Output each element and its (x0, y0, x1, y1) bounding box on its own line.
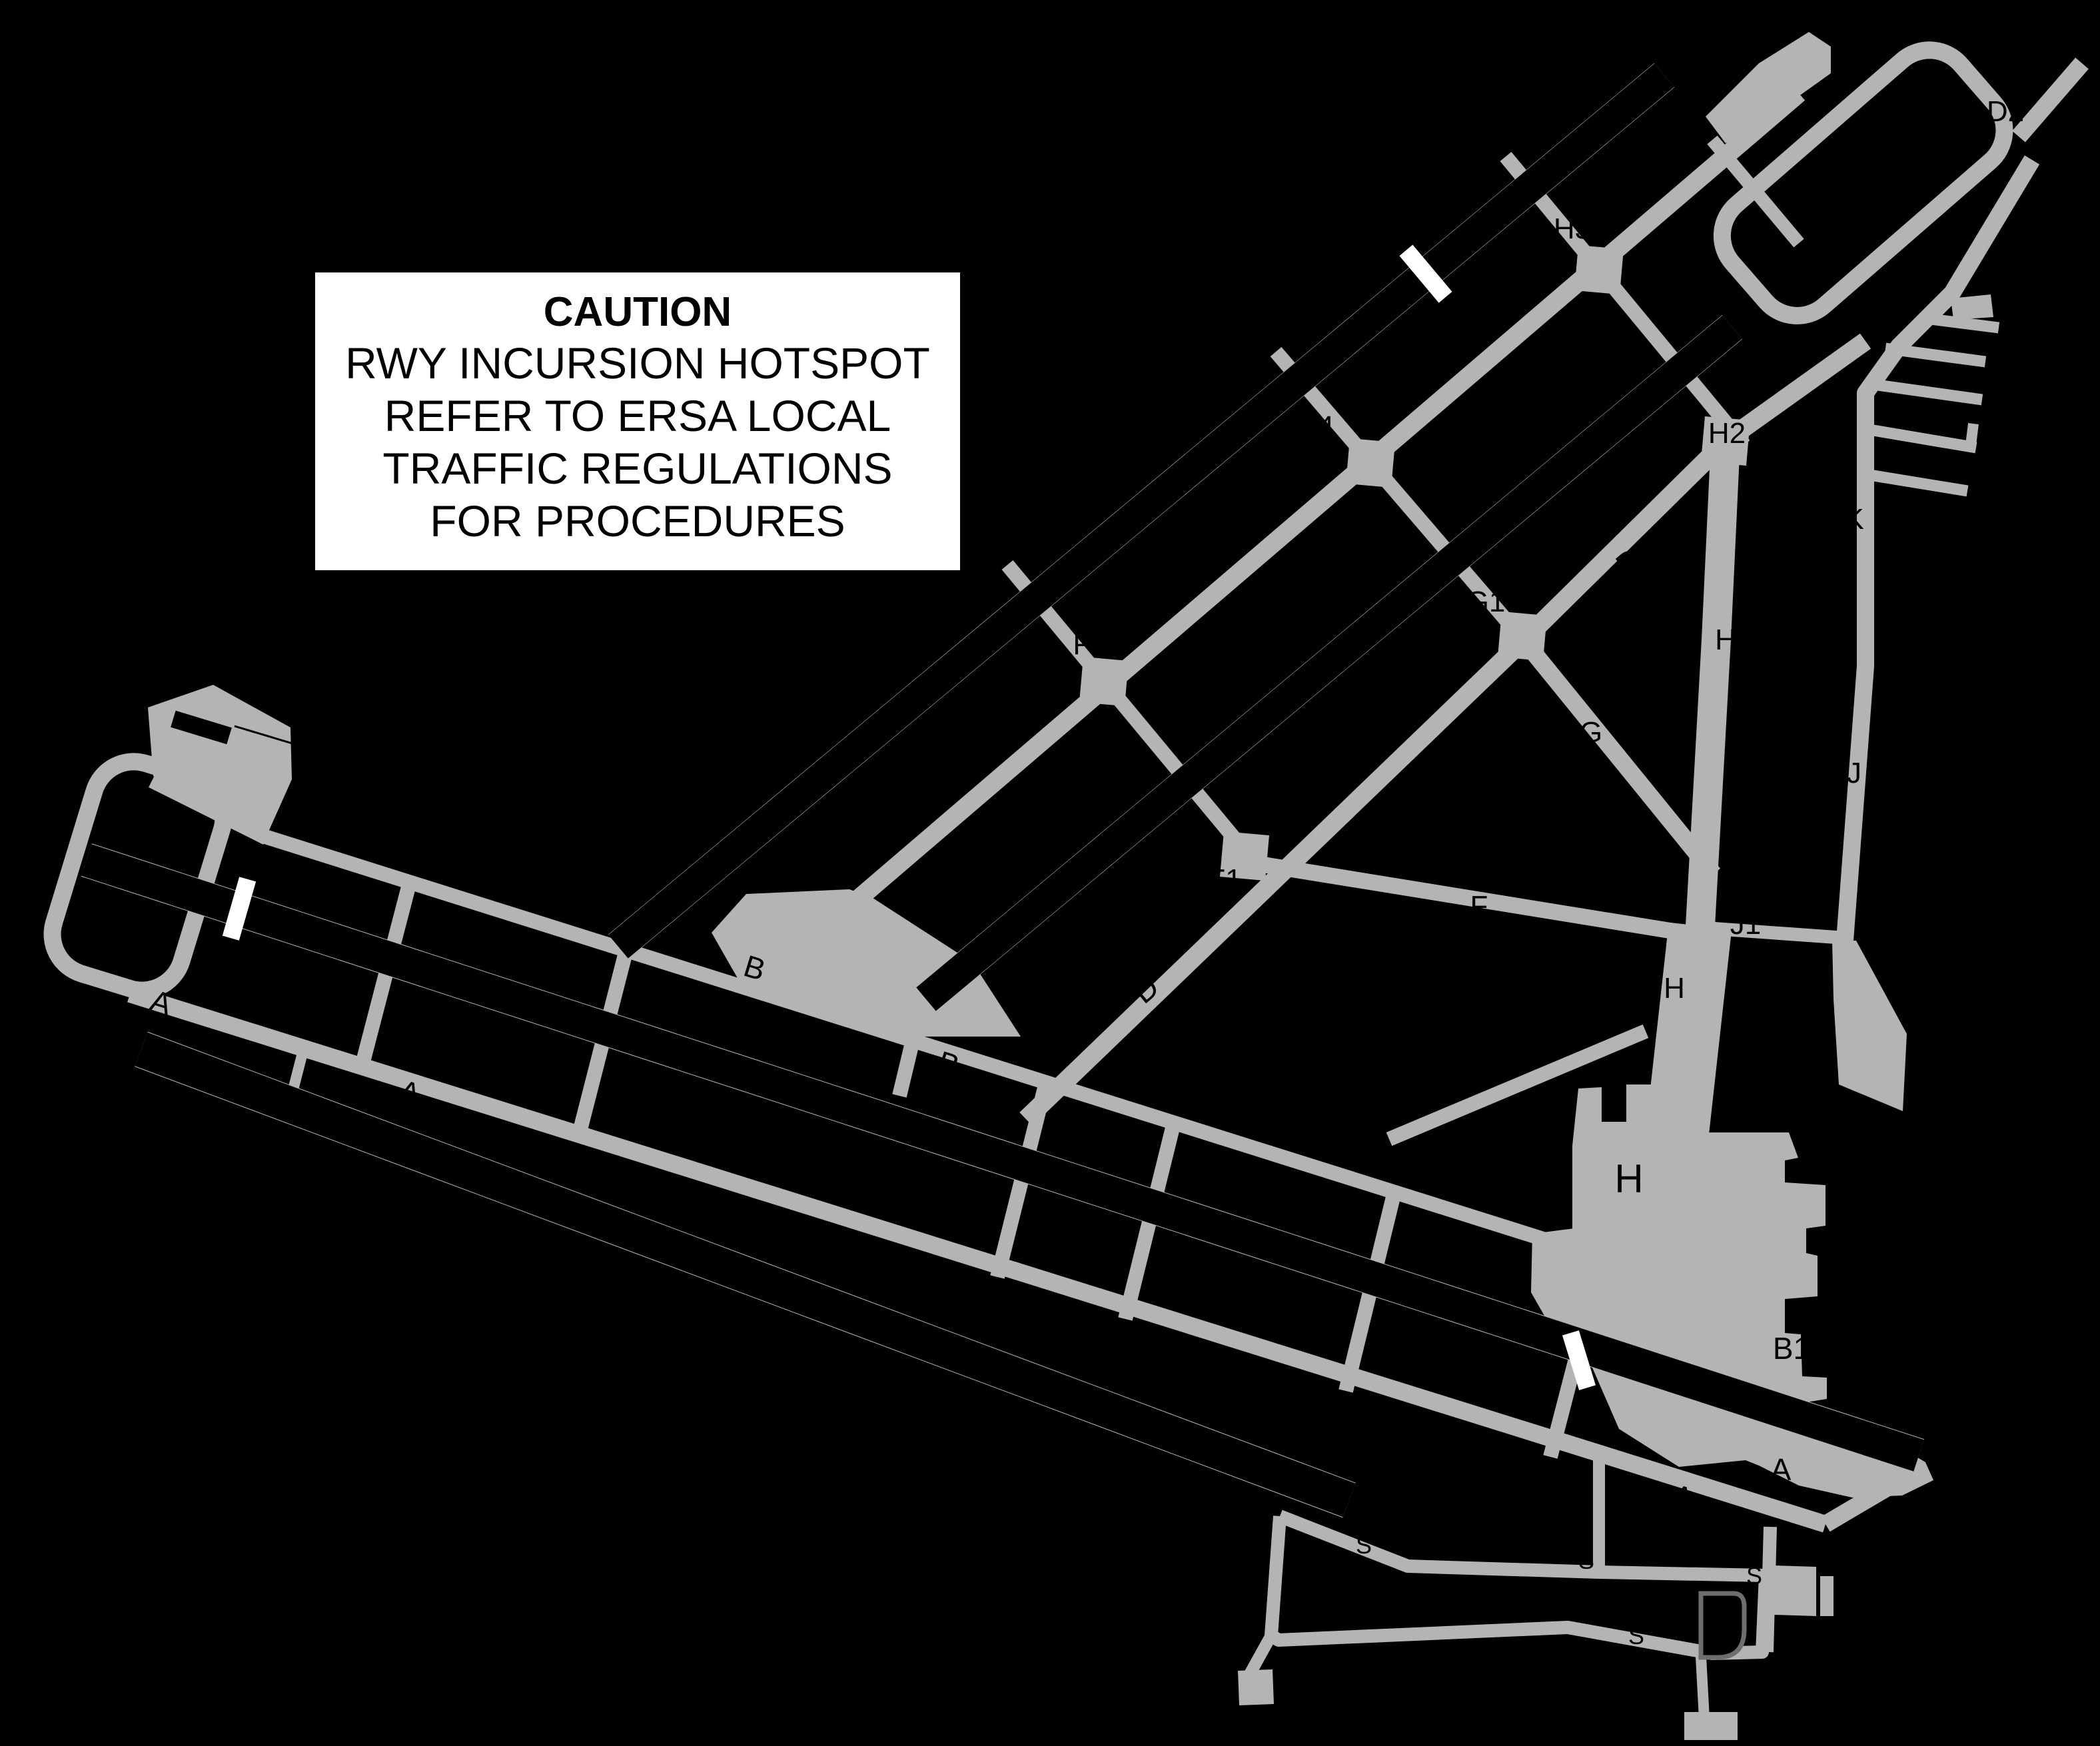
svg-text:S: S (1236, 1550, 1252, 1577)
svg-text:H: H (1614, 1156, 1643, 1201)
svg-text:G1: G1 (1466, 586, 1506, 618)
svg-text:S: S (1356, 1531, 1372, 1559)
svg-text:S: S (1578, 1547, 1594, 1574)
svg-text:H: H (1715, 624, 1736, 656)
svg-text:D1: D1 (2033, 193, 2071, 225)
svg-text:D2: D2 (1987, 95, 2024, 128)
svg-text:H2: H2 (1708, 417, 1746, 450)
svg-text:F: F (1470, 890, 1488, 923)
svg-text:J: J (1847, 757, 1861, 789)
svg-text:D14: D14 (1836, 306, 1889, 338)
svg-text:G: G (1580, 716, 1602, 749)
svg-text:REFER TO ERSA LOCAL: REFER TO ERSA LOCAL (384, 391, 891, 440)
svg-text:CAUTION: CAUTION (544, 289, 732, 335)
svg-text:TRAFFIC REGULATIONS: TRAFFIC REGULATIONS (382, 444, 892, 493)
svg-text:F1: F1 (1207, 863, 1241, 896)
svg-text:H3: H3 (1554, 213, 1591, 245)
svg-text:FOR PROCEDURES: FOR PROCEDURES (430, 496, 845, 546)
svg-text:J1: J1 (1730, 908, 1761, 941)
svg-text:S: S (1460, 1602, 1476, 1629)
svg-text:K: K (1844, 503, 1863, 536)
svg-text:RWY INCURSION HOTSPOT: RWY INCURSION HOTSPOT (345, 338, 930, 388)
svg-text:G4: G4 (1295, 410, 1334, 443)
svg-text:A: A (1771, 1452, 1792, 1487)
svg-text:H: H (1664, 972, 1685, 1005)
svg-text:F2: F2 (1073, 628, 1107, 661)
svg-text:C1: C1 (1667, 101, 1704, 133)
svg-text:S: S (1746, 1562, 1762, 1589)
svg-text:S: S (1628, 1622, 1644, 1649)
svg-text:B1: B1 (1773, 1331, 1810, 1366)
